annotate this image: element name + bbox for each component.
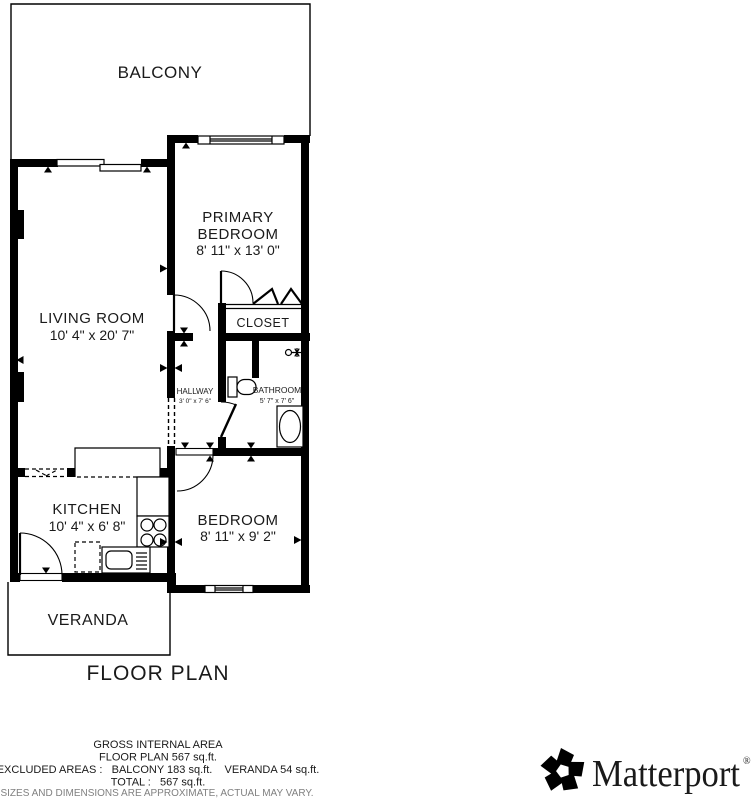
floor-plan-page: BALCONY LIVING ROOM 10' 4" x 20' 7" PRIM… [0,0,752,800]
room-dims-kitchen: 10' 4" x 6' 8" [49,518,126,534]
room-label-primary-bedroom-1: PRIMARY [202,209,274,226]
wall-pilaster [10,210,24,239]
room-label-kitchen: KITCHEN [52,501,121,518]
room-label-balcony: BALCONY [118,63,203,82]
room-label-closet: CLOSET [236,316,289,330]
registered-trademark-symbol: ® [743,756,751,767]
footer-gross-internal-area: GROSS INTERNAL AREA [93,739,223,751]
matterport-wordmark: Matterport [592,753,740,795]
door-primary-bedroom [221,271,253,303]
door-bedroom [176,449,213,492]
door-bathroom [221,402,236,437]
matterport-logo: Matterport ® [539,748,751,796]
room-label-hallway: HALLWAY [177,387,214,396]
shower-valve-icon [286,348,302,357]
bifold-door [253,289,278,304]
footer-disclaimer: SIZES AND DIMENSIONS ARE APPROXIMATE, AC… [0,788,313,799]
counter-side [137,477,169,516]
footer: GROSS INTERNAL AREA FLOOR PLAN 567 sq.ft… [0,739,319,799]
closet-fixtures [226,289,302,309]
door-entry-veranda [20,533,62,581]
counter-peninsula [75,448,160,477]
dishwasher-icon [75,542,100,572]
bathtub-icon [277,406,303,447]
room-label-living-room: LIVING ROOM [39,310,145,327]
room-dims-hallway: 3' 0" x 7' 6" [179,398,212,405]
door-living-to-hallway [174,295,210,331]
plan-title: FLOOR PLAN [86,662,229,685]
floor-plan-canvas: BALCONY LIVING ROOM 10' 4" x 20' 7" PRIM… [0,0,752,800]
footer-total-area: TOTAL : 567 sq.ft. [111,777,206,789]
room-dims-primary-bedroom: 8' 11" x 13' 0" [196,242,280,258]
footer-excluded-areas: EXCLUDED AREAS : BALCONY 183 sq.ft. VERA… [0,764,319,776]
matterport-pinwheel-icon [539,748,588,796]
room-label-primary-bedroom-2: BEDROOM [197,226,278,243]
room-label-bedroom: BEDROOM [197,512,278,529]
dashed-opening-kitchen [25,469,67,477]
room-dims-living-room: 10' 4" x 20' 7" [50,327,135,343]
window-bedroom [205,586,253,593]
wall-pilaster [10,372,24,402]
footer-floor-plan-area: FLOOR PLAN 567 sq.ft. [99,752,217,764]
room-label-veranda: VERANDA [48,612,129,629]
dashed-wall-hallway [169,398,175,446]
sink-icon [102,547,150,573]
sliding-door-living-room [57,160,141,172]
room-label-bathroom: BATHROOM [253,385,301,395]
room-dims-bathroom: 5' 7" x 7' 6" [260,398,295,405]
window-primary-bedroom [198,136,284,144]
room-dims-bedroom: 8' 11" x 9' 2" [200,528,276,544]
bifold-door [281,289,302,304]
